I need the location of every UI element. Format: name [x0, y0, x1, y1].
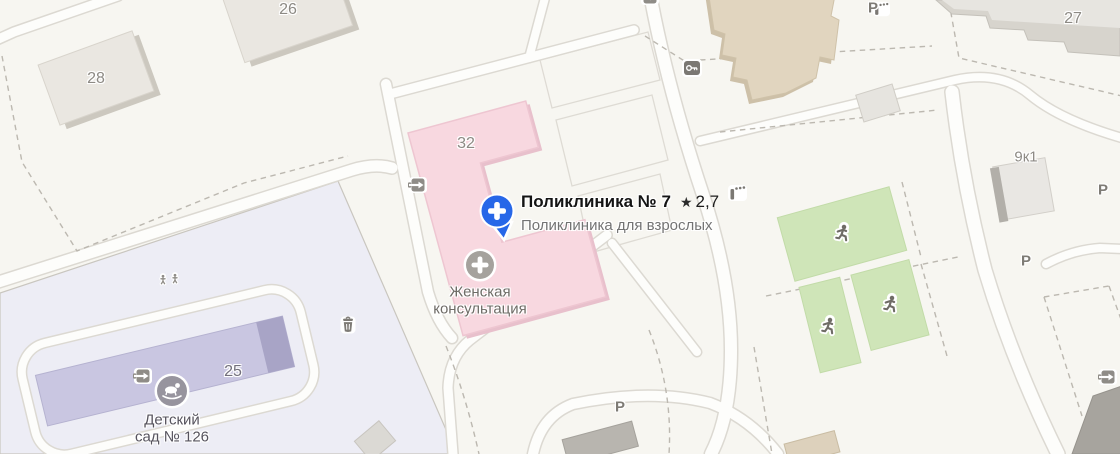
parking-label: Р — [1021, 253, 1031, 270]
building-tan — [705, 0, 839, 104]
womens-clinic-icon[interactable] — [464, 249, 497, 282]
trash-icon — [341, 317, 356, 334]
kindergarten-label-line2: сад № 126 — [135, 429, 209, 446]
sports-fields — [777, 187, 929, 373]
building-label-9k1: 9к1 — [1014, 149, 1037, 166]
main-poi-title[interactable]: Поликлиника № 7 — [521, 192, 671, 211]
main-poi-rating: 2,7 — [696, 192, 720, 211]
womens-clinic-label-line2: консультация — [433, 301, 527, 318]
parking-label: Р — [1098, 182, 1108, 199]
barrier-icon — [728, 185, 747, 201]
entrance-icon — [408, 177, 427, 193]
playground-icon — [161, 275, 165, 284]
playground-icon — [173, 274, 177, 283]
building-label-28: 28 — [87, 70, 105, 88]
building-dark-bottomright — [1072, 386, 1120, 454]
parking-label: Р — [868, 0, 878, 17]
womens-clinic-label-line1: Женская — [449, 284, 510, 301]
main-poi-card[interactable]: Поликлиника № 7★2,7 — [521, 192, 719, 212]
main-poi-subtitle: Поликлиника для взрослых — [521, 217, 713, 234]
map-canvas[interactable]: 26 28 32 27 9к1 25 Р Р Р Р Женская консу… — [0, 0, 1120, 454]
building-label-25: 25 — [224, 363, 242, 381]
gate-key-icon — [682, 59, 702, 77]
building-bottom-tan — [784, 431, 840, 454]
building-label-27: 27 — [1064, 10, 1082, 28]
building-label-26: 26 — [279, 1, 297, 19]
rating-star-icon: ★ — [680, 194, 693, 210]
entrance-icon — [640, 0, 659, 5]
building-small-topright — [856, 84, 901, 122]
entrance-icon — [133, 368, 152, 384]
entrance-icon — [1098, 369, 1117, 385]
building-27 — [936, 0, 1120, 56]
parking-label: Р — [615, 399, 625, 416]
kindergarten-label-line1: Детский — [144, 412, 200, 429]
building-9k1 — [990, 158, 1055, 223]
kindergarten-icon[interactable] — [155, 374, 190, 409]
building-label-32: 32 — [457, 135, 475, 153]
building-bottom-gray — [562, 421, 638, 454]
